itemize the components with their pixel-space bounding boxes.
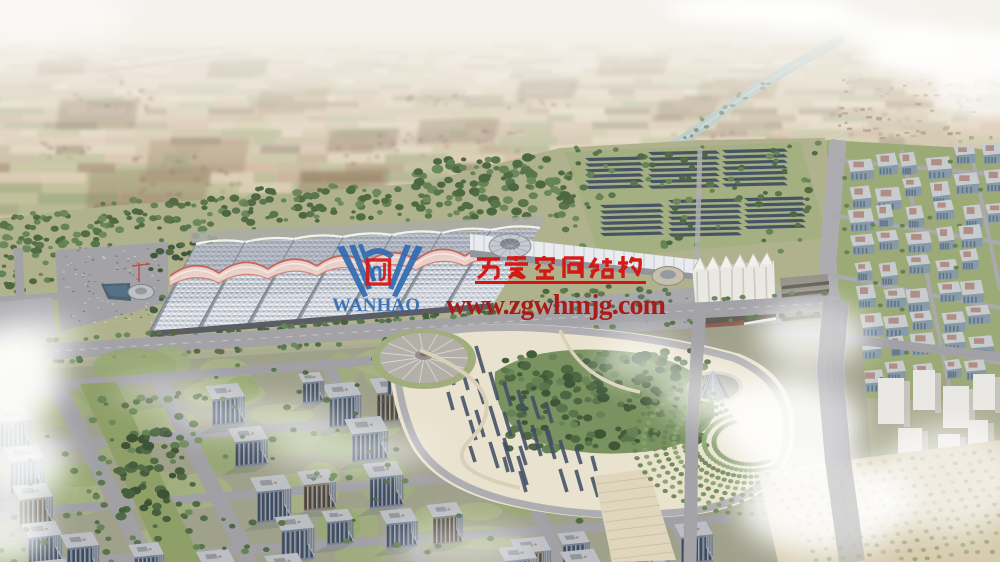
- svg-text:WANHAO: WANHAO: [332, 295, 420, 316]
- svg-text:www.zgwhmjg.com: www.zgwhmjg.com: [446, 290, 666, 321]
